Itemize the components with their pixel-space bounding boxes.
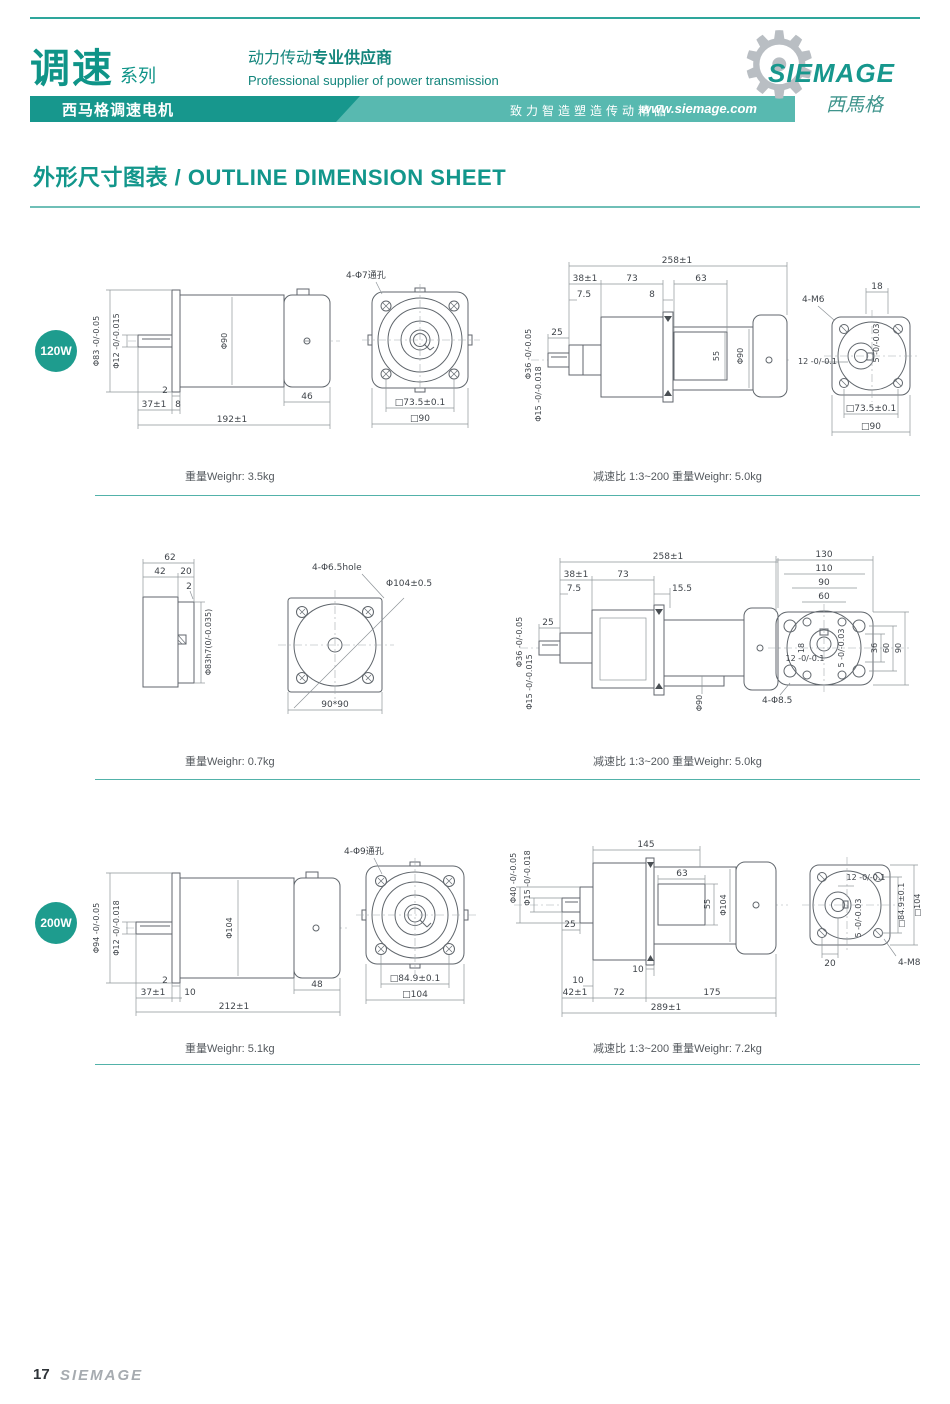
dim-192: 192±1 bbox=[217, 415, 247, 425]
dim-7-5: 7.5 bbox=[577, 290, 591, 300]
dim-phi36: Φ36 -0/-0.05 bbox=[515, 617, 524, 667]
dim-90-right: 90 bbox=[894, 643, 903, 653]
dim-25: 25 bbox=[564, 920, 575, 930]
label-4-phi7-holes: 4-Φ7通孔 bbox=[346, 270, 386, 281]
outline-geometry bbox=[128, 289, 340, 392]
dim-25: 25 bbox=[551, 328, 562, 338]
dim-phi83h7: Φ83h7(0/-0.035) bbox=[204, 609, 213, 675]
dim-63: 63 bbox=[695, 274, 706, 284]
dim-60-right: 60 bbox=[882, 643, 891, 653]
dim-8: 8 bbox=[649, 290, 655, 300]
dim-38: 38±1 bbox=[564, 570, 589, 580]
page-title: 外形尺寸图表 / OUTLINE DIMENSION SHEET bbox=[33, 160, 506, 192]
dim-10-left: 10 bbox=[572, 976, 584, 986]
dim-36-right: 36 bbox=[870, 643, 879, 653]
drawing-120w-motor-side: Φ83 -0/-0.05 Φ12 -0/-0.015 Φ90 2 37±1 8 … bbox=[92, 250, 342, 435]
dim-42: 42 bbox=[154, 567, 165, 577]
dim-12: 12 -0/-0.1 bbox=[798, 357, 837, 366]
banner-product-label: 西马格调速电机 bbox=[62, 99, 174, 120]
drawing-120w-gearmotor-side: 258±1 38±1 73 63 7.5 8 25 Φ36 -0/-0.05 Φ… bbox=[521, 250, 793, 450]
dim-38: 38±1 bbox=[573, 274, 598, 284]
series-suffix: 系列 bbox=[120, 62, 156, 88]
dim-145: 145 bbox=[637, 840, 654, 850]
outline-geometry bbox=[356, 858, 478, 974]
caption-ratio-2: 减速比 1:3~200 重量Weighr: 5.0kg bbox=[593, 753, 762, 769]
outline-geometry bbox=[126, 872, 348, 983]
outline-geometry bbox=[143, 597, 194, 687]
dim-25: 25 bbox=[542, 618, 553, 628]
caption-ratio-120w: 减速比 1:3~200 重量Weighr: 5.0kg bbox=[593, 468, 762, 484]
dim-289: 289±1 bbox=[651, 1003, 681, 1013]
banner-product-ribbon: 西马格调速电机 bbox=[30, 96, 360, 122]
dim-5: 5 -0/-0.03 bbox=[854, 898, 863, 937]
label-4-phi8-5: 4-Φ8.5 bbox=[762, 696, 792, 706]
dim-sq73-5: □73.5±0.1 bbox=[395, 398, 445, 408]
dim-phi36: Φ36 -0/-0.05 bbox=[524, 329, 533, 379]
dim-phi90: Φ90 bbox=[736, 348, 745, 364]
dim-130: 130 bbox=[815, 550, 832, 560]
drawing-gearmotor-side-2: 258±1 38±1 73 15.5 7.5 25 Φ36 -0/-0.05 Φ… bbox=[512, 548, 784, 713]
dim-2: 2 bbox=[186, 582, 192, 592]
dimension-lines bbox=[288, 574, 404, 714]
tagline-block: 动力传动专业供应商 Professional supplier of power… bbox=[248, 44, 499, 88]
section-divider bbox=[95, 1064, 920, 1065]
catalog-page: { "colors":{"teal":"#17978d","teal_light… bbox=[0, 0, 950, 1404]
dim-55: 55 bbox=[712, 351, 721, 361]
page-number: 17 bbox=[33, 1366, 50, 1383]
dim-62: 62 bbox=[164, 553, 175, 563]
dim-sq104: □104 bbox=[402, 990, 428, 1000]
dim-46: 46 bbox=[301, 392, 313, 402]
dim-sq90: □90 bbox=[410, 414, 430, 424]
title-rule bbox=[30, 206, 920, 208]
drawing-200w-flange-front: 4-Φ9通孔 □84.9±0.1 □104 bbox=[336, 840, 511, 1010]
dim-5: 5 -0/-0.03 bbox=[837, 628, 846, 667]
outline-geometry bbox=[802, 857, 898, 953]
dim-phi104: Φ104±0.5 bbox=[386, 579, 432, 589]
company-logo: ⚙ SIEMAGE 西馬格 bbox=[750, 22, 930, 122]
dim-phi104: Φ104 bbox=[719, 894, 728, 916]
dim-phi12: Φ12 -0/-0.015 bbox=[112, 313, 121, 368]
dim-sq90: □90 bbox=[861, 422, 881, 432]
dim-37: 37±1 bbox=[142, 400, 167, 410]
dim-90x90: 90*90 bbox=[321, 700, 349, 710]
dim-phi15: Φ15 -0/-0.018 bbox=[523, 850, 532, 905]
label-4-phi6-5-hole: 4-Φ6.5hole bbox=[312, 563, 362, 573]
logo-cn-name: 西馬格 bbox=[826, 90, 883, 117]
badge-120w: 120W bbox=[35, 330, 77, 372]
dim-sq104: □104 bbox=[913, 894, 922, 917]
dim-73: 73 bbox=[617, 570, 628, 580]
series-title: 调速 bbox=[30, 36, 114, 94]
dim-37: 37±1 bbox=[141, 988, 166, 998]
dim-72: 72 bbox=[613, 988, 624, 998]
dim-phi104: Φ104 bbox=[225, 917, 234, 939]
dim-5: 5 -0/-0.03 bbox=[872, 323, 881, 362]
dim-20: 20 bbox=[180, 567, 192, 577]
badge-200w: 200W bbox=[35, 902, 77, 944]
outline-geometry bbox=[531, 312, 789, 402]
outline-geometry bbox=[278, 590, 394, 700]
dim-212: 212±1 bbox=[219, 1002, 249, 1012]
tagline-cn: 动力传动专业供应商 bbox=[248, 44, 499, 68]
dim-phi12: Φ12 -0/-0.018 bbox=[112, 900, 121, 955]
section-divider bbox=[95, 779, 920, 780]
dim-15-5: 15.5 bbox=[672, 584, 692, 594]
caption-ratio-200w: 减速比 1:3~200 重量Weighr: 7.2kg bbox=[593, 1040, 762, 1056]
dim-55: 55 bbox=[703, 899, 712, 909]
outline-geometry bbox=[362, 284, 480, 396]
dim-phi40: Φ40 -0/-0.05 bbox=[509, 853, 518, 903]
dim-10-plate: 10 bbox=[632, 965, 644, 975]
dim-phi83: Φ83 -0/-0.05 bbox=[92, 316, 101, 366]
dim-42: 42±1 bbox=[563, 988, 588, 998]
dim-18: 18 bbox=[797, 643, 806, 653]
dim-phi90: Φ90 bbox=[220, 333, 229, 349]
drawing-200w-gear-flange: 12 -0/-0.1 5 -0/-0.03 □84.9±0.1 □104 20 … bbox=[798, 844, 938, 974]
drawing-unit-side: 62 42 20 2 Φ83h7(0/-0.035) bbox=[135, 553, 245, 693]
section-divider bbox=[95, 495, 920, 496]
dim-48: 48 bbox=[311, 980, 323, 990]
dim-110: 110 bbox=[815, 564, 832, 574]
drawing-200w-motor-side: Φ94 -0/-0.05 Φ12 -0/-0.018 Φ104 2 37±1 1… bbox=[92, 840, 352, 1020]
dim-73: 73 bbox=[626, 274, 637, 284]
dim-sq73-5: □73.5±0.1 bbox=[846, 404, 896, 414]
dim-phi94: Φ94 -0/-0.05 bbox=[92, 903, 101, 953]
dim-18: 18 bbox=[871, 282, 883, 292]
dim-sq84-9: □84.9±0.1 bbox=[897, 883, 906, 928]
dim-sq84-9: □84.9±0.1 bbox=[390, 974, 440, 984]
dim-258: 258±1 bbox=[653, 552, 683, 562]
dim-60-top: 60 bbox=[818, 592, 830, 602]
drawing-square-flange-front: 4-Φ6.5hole Φ104±0.5 90*90 bbox=[272, 548, 457, 728]
logo-name: SIEMAGE bbox=[768, 58, 895, 89]
header-banner: 西马格调速电机 致力智造塑造传动精品 www.siemage.com bbox=[30, 96, 795, 122]
dim-63: 63 bbox=[676, 869, 687, 879]
footer-logo: SIEMAGE bbox=[60, 1367, 143, 1384]
dim-phi15: Φ15 -0/-0.018 bbox=[534, 366, 543, 421]
drawing-120w-gear-flange: 4-M6 18 12 -0/-0.1 5 -0/-0.03 □73.5±0.1 … bbox=[798, 256, 948, 441]
drawing-200w-gearmotor-side: 145 Φ40 -0/-0.05 Φ15 -0/-0.018 63 55 Φ10… bbox=[502, 838, 792, 1020]
dim-10: 10 bbox=[184, 988, 196, 998]
drawing-120w-flange-front: 4-Φ7通孔 □73.5±0.1 □90 bbox=[340, 262, 510, 432]
dim-12: 12 -0/-0.1 bbox=[785, 654, 824, 663]
tagline-cn-regular: 动力传动 bbox=[248, 50, 312, 67]
label-4-phi9-holes: 4-Φ9通孔 bbox=[344, 846, 384, 857]
tagline-en: Professional supplier of power transmiss… bbox=[248, 73, 499, 88]
dim-175: 175 bbox=[703, 988, 720, 998]
dim-2: 2 bbox=[162, 386, 168, 396]
outline-geometry bbox=[520, 605, 780, 695]
dim-8: 8 bbox=[175, 400, 181, 410]
dim-2: 2 bbox=[162, 976, 168, 986]
dim-20: 20 bbox=[824, 959, 836, 969]
dim-258: 258±1 bbox=[662, 256, 692, 266]
dim-7-5: 7.5 bbox=[567, 584, 581, 594]
caption-weight-120w: 重量Weighr: 3.5kg bbox=[185, 468, 275, 484]
tagline-cn-bold: 专业供应商 bbox=[312, 50, 392, 67]
dim-phi90: Φ90 bbox=[695, 695, 704, 711]
drawing-foot-flange: 130 110 90 60 18 12 -0/-0.1 5 -0/-0.03 3… bbox=[760, 548, 920, 708]
series-title-block: 调速 系列 bbox=[30, 36, 156, 94]
caption-weight-2: 重量Weighr: 0.7kg bbox=[185, 753, 275, 769]
outline-geometry bbox=[514, 858, 788, 965]
label-4-m8: 4-M8 bbox=[898, 958, 921, 968]
dim-90-top: 90 bbox=[818, 578, 830, 588]
caption-weight-200w: 重量Weighr: 5.1kg bbox=[185, 1040, 275, 1056]
dim-phi15: Φ15 -0/-0.015 bbox=[525, 654, 534, 709]
label-4-m6: 4-M6 bbox=[802, 295, 825, 305]
dim-12: 12 -0/-0.1 bbox=[846, 873, 885, 882]
